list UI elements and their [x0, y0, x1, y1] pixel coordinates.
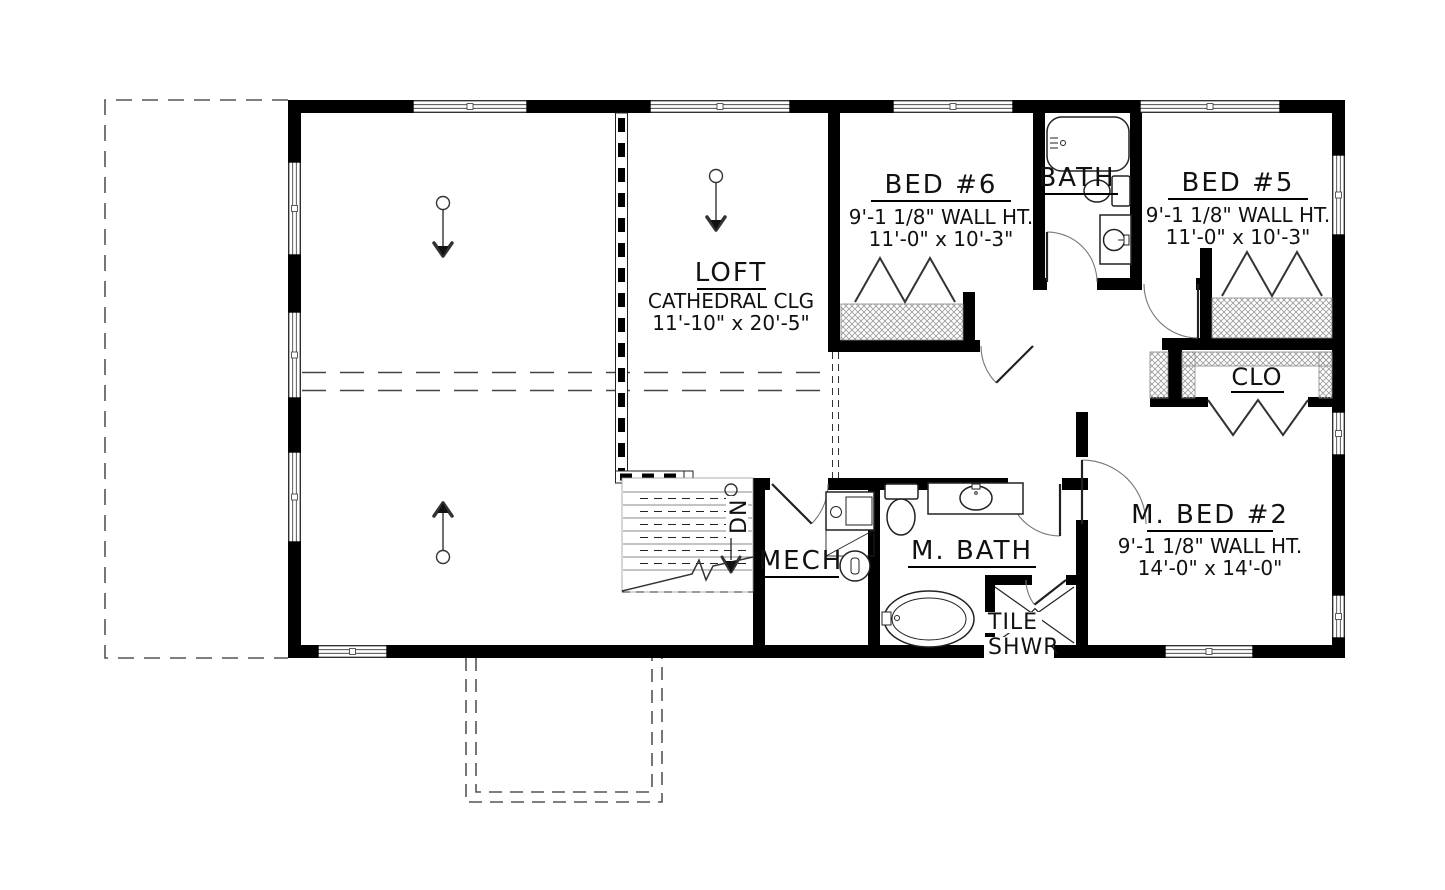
- bath-label: BATH: [1038, 163, 1115, 193]
- window-mullion: [1336, 431, 1342, 437]
- furnace-dial: [831, 507, 842, 518]
- wall-above-marker: [833, 352, 839, 478]
- mbath-tub-inner: [892, 598, 966, 640]
- wall-clo-south-right: [1308, 397, 1345, 407]
- window-mullion: [1336, 614, 1342, 620]
- wall-clo-south-left: [1150, 397, 1208, 407]
- slope-arrow-origin: [437, 551, 450, 564]
- furnace-panel: [846, 497, 872, 525]
- wall-mbath-north-east: [1062, 478, 1088, 490]
- window-mullion: [1207, 104, 1213, 110]
- dashed-outline-entry-below: [466, 658, 662, 802]
- bed6-door-arc: [981, 346, 996, 383]
- dashed-outline-left-roof: [105, 100, 288, 658]
- clo-bifold: [1208, 400, 1308, 435]
- wall-shower-north-stub: [1066, 575, 1076, 585]
- clo-label: CLO: [1231, 363, 1282, 391]
- clo-hatch-left: [1182, 352, 1195, 398]
- mbath-toilet-bowl: [887, 499, 915, 535]
- loft-label: LOFT: [695, 258, 767, 288]
- mech-label: MECH: [759, 546, 844, 576]
- water-heater-core: [851, 558, 859, 574]
- wall-loft-bed6: [828, 113, 840, 352]
- floor-plan-canvas: LOFT CATHEDRAL CLG 11'-10" x 20'-5" BED …: [0, 0, 1445, 890]
- loft-note: CATHEDRAL CLG: [648, 289, 814, 313]
- wall-mbath-east: [1076, 520, 1088, 645]
- slope-arrow-origin: [437, 197, 450, 210]
- wall-bed5-closet-west: [1200, 248, 1212, 350]
- mbath-toilet-tank: [885, 484, 918, 499]
- shower-label-line2: SHWR: [988, 635, 1060, 660]
- loft-dims: 11'-10" x 20'-5": [652, 311, 809, 335]
- hall-wall-hatch-stub: [1150, 352, 1168, 398]
- shower-door-leaf: [1034, 580, 1066, 605]
- mbed-wall-ht: 9'-1 1/8" WALL HT.: [1118, 534, 1303, 558]
- floor-plan-page: LOFT CATHEDRAL CLG 11'-10" x 20'-5" BED …: [0, 0, 1445, 890]
- bed5-closet-hatch: [1212, 298, 1332, 338]
- stairs-dn-label: DN: [727, 499, 752, 534]
- bed5-closet-bifold: [1222, 252, 1322, 296]
- wall-mbed-door-stub: [1076, 412, 1088, 457]
- slope-arrow-origin: [710, 170, 723, 183]
- ridge-lines: [302, 373, 833, 391]
- bed6-door-leaf: [996, 346, 1033, 383]
- window-mullion: [292, 494, 298, 500]
- mbed-dims: 14'-0" x 14'-0": [1138, 556, 1283, 580]
- bed6-dims: 11'-0" x 10'-3": [869, 227, 1014, 251]
- window-mullion: [292, 206, 298, 212]
- wall-bath-south-left: [1033, 278, 1047, 290]
- bed6-wall-ht: 9'-1 1/8" WALL HT.: [849, 205, 1034, 229]
- window-mullion: [1206, 649, 1212, 655]
- window-mullion: [292, 352, 298, 358]
- wall-bath-south-right: [1097, 278, 1142, 290]
- mech-door-leaf: [772, 484, 812, 524]
- bed6-label: BED #6: [885, 170, 998, 200]
- window-mullion: [350, 649, 356, 655]
- window-mullion: [950, 104, 956, 110]
- bed6-closet-bifold: [855, 258, 955, 302]
- bath-door-arc: [1047, 232, 1097, 282]
- mbath-label: M. BATH: [911, 536, 1033, 566]
- clo-hatch-right: [1319, 352, 1332, 398]
- wall-clo-north: [1162, 338, 1345, 350]
- window-mullion: [467, 104, 473, 110]
- wall-clo-west-stub: [1168, 350, 1182, 398]
- wall-bath-bed5: [1130, 113, 1142, 290]
- bed5-door-arc: [1144, 284, 1198, 338]
- window-mullion: [717, 104, 723, 110]
- wall-bed6-bath: [1033, 113, 1045, 290]
- wall-bed6-closet-jamb: [963, 292, 975, 352]
- bed6-closet-hatch: [841, 304, 963, 340]
- wall-bed6-south: [828, 340, 980, 352]
- window-mullion: [1336, 192, 1342, 198]
- mbed-label: M. BED #2: [1131, 500, 1289, 530]
- shower-label-line1: TILE: [987, 610, 1038, 635]
- mbath-sink: [960, 486, 992, 510]
- bed5-label: BED #5: [1182, 168, 1295, 198]
- bed5-wall-ht: 9'-1 1/8" WALL HT.: [1146, 203, 1331, 227]
- bed5-dims: 11'-0" x 10'-3": [1166, 225, 1311, 249]
- wall-shower-north: [985, 575, 1032, 585]
